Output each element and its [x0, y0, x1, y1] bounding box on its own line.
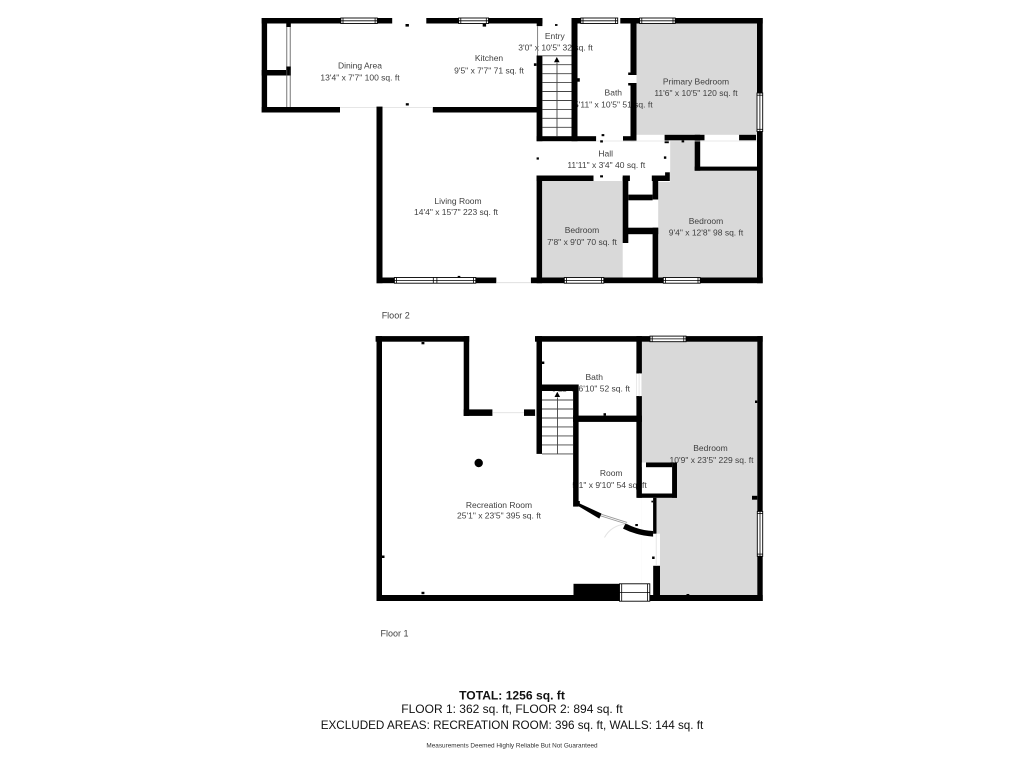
svg-text:Hall: Hall: [598, 148, 613, 158]
svg-text:3'0" x 10'5" 32 sq. ft: 3'0" x 10'5" 32 sq. ft: [518, 43, 593, 53]
svg-text:FLOOR 1: 362 sq. ft, FLOOR 2:: FLOOR 1: 362 sq. ft, FLOOR 2: 894 sq. ft: [401, 702, 623, 716]
svg-text:Floor 2: Floor 2: [382, 310, 410, 320]
svg-text:Primary Bedroom: Primary Bedroom: [663, 76, 729, 86]
svg-text:10'9" x 23'5" 229 sq. ft: 10'9" x 23'5" 229 sq. ft: [670, 455, 755, 465]
svg-text:Floor 1: Floor 1: [381, 629, 409, 639]
svg-text:Room: Room: [600, 468, 623, 478]
svg-text:Dining Area: Dining Area: [338, 60, 382, 70]
svg-text:Bedroom: Bedroom: [689, 216, 724, 226]
svg-text:Bedroom: Bedroom: [693, 443, 728, 453]
svg-text:Living Room: Living Room: [434, 196, 481, 206]
svg-text:Recreation Room: Recreation Room: [466, 500, 532, 510]
svg-text:7'8" x 9'0" 70 sq. ft: 7'8" x 9'0" 70 sq. ft: [547, 237, 617, 247]
svg-text:TOTAL: 1256 sq. ft: TOTAL: 1256 sq. ft: [459, 689, 565, 703]
svg-text:EXCLUDED AREAS: RECREATION ROO: EXCLUDED AREAS: RECREATION ROOM: 396 sq.…: [321, 719, 704, 732]
svg-text:Measurements Deemed Highly Rel: Measurements Deemed Highly Reliable But …: [426, 743, 598, 750]
svg-text:Bath: Bath: [605, 87, 623, 97]
svg-text:9'4" x 12'8" 98 sq. ft: 9'4" x 12'8" 98 sq. ft: [669, 227, 744, 237]
svg-text:14'4" x 15'7" 223 sq. ft: 14'4" x 15'7" 223 sq. ft: [414, 207, 499, 217]
svg-text:Entry: Entry: [545, 31, 566, 41]
svg-text:11'6" x 10'5" 120 sq. ft: 11'6" x 10'5" 120 sq. ft: [654, 88, 738, 98]
svg-text:5'1" x 9'10" 54 sq. ft: 5'1" x 9'10" 54 sq. ft: [572, 480, 647, 490]
svg-text:5'11" x 10'5" 51 sq. ft: 5'11" x 10'5" 51 sq. ft: [574, 100, 653, 110]
svg-text:11'11" x 3'4" 40 sq. ft: 11'11" x 3'4" 40 sq. ft: [567, 160, 646, 170]
svg-text:Bedroom: Bedroom: [565, 225, 600, 235]
svg-text:13'4" x 7'7" 100 sq. ft: 13'4" x 7'7" 100 sq. ft: [320, 72, 400, 82]
svg-text:Bath: Bath: [585, 372, 603, 382]
svg-text:Kitchen: Kitchen: [475, 53, 504, 63]
svg-text:25'1" x 23'5" 395 sq. ft: 25'1" x 23'5" 395 sq. ft: [457, 511, 542, 521]
svg-text:9'5" x 7'7" 71 sq. ft: 9'5" x 7'7" 71 sq. ft: [454, 65, 524, 75]
